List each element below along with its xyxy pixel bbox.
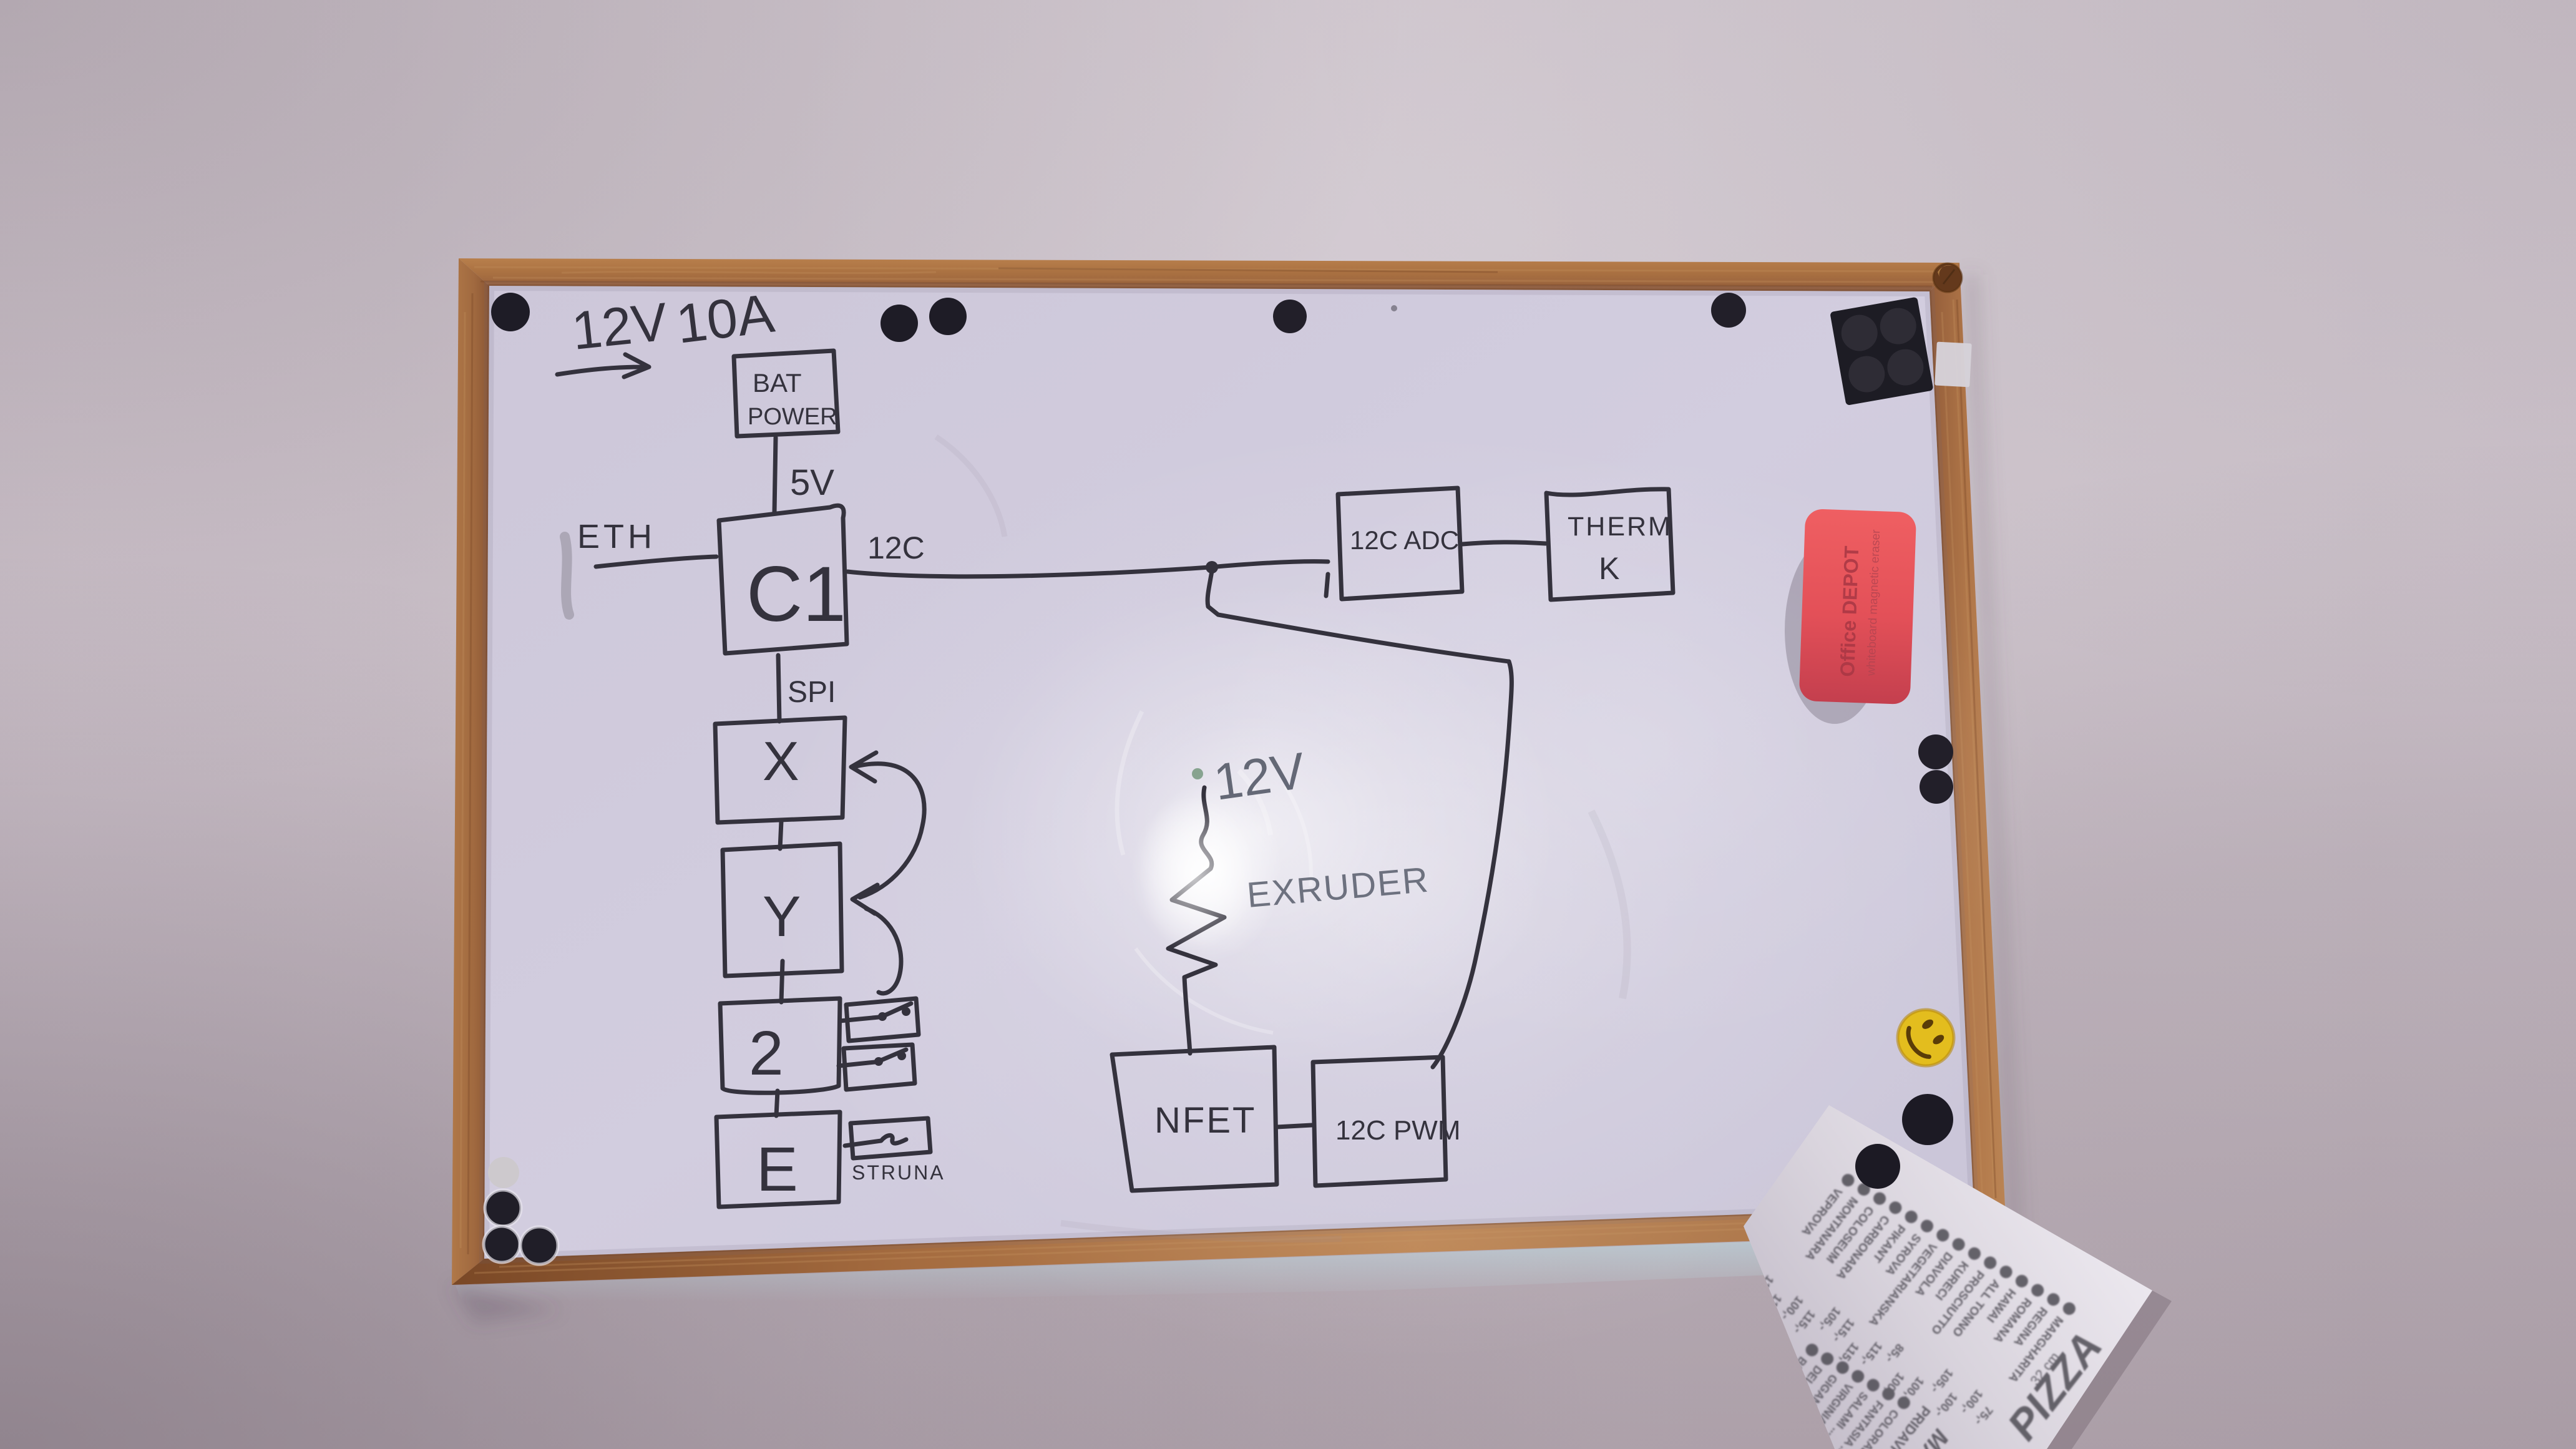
svg-text:THERM: THERM <box>1568 512 1672 542</box>
svg-text:ETH: ETH <box>577 518 656 555</box>
svg-text:10A: 10A <box>673 281 778 354</box>
svg-text:E: E <box>756 1134 798 1204</box>
svg-text:POWER: POWER <box>748 404 837 430</box>
svg-text:NFET: NFET <box>1154 1100 1256 1141</box>
svg-text:C1: C1 <box>746 551 846 638</box>
svg-text:2: 2 <box>749 1018 784 1088</box>
svg-text:Office DEPOT: Office DEPOT <box>1836 545 1863 677</box>
svg-text:STRUNA: STRUNA <box>852 1161 945 1184</box>
svg-text:5V: 5V <box>790 462 834 503</box>
svg-text:K: K <box>1599 551 1619 586</box>
svg-text:12V: 12V <box>569 291 670 361</box>
svg-text:SPI: SPI <box>788 676 836 709</box>
svg-text:12C ADC: 12C ADC <box>1350 525 1459 555</box>
svg-text:12C PWM: 12C PWM <box>1335 1115 1460 1146</box>
svg-text:Y: Y <box>763 885 801 949</box>
svg-text:X: X <box>763 730 799 792</box>
svg-text:BAT: BAT <box>753 368 802 398</box>
svg-text:12C: 12C <box>867 530 925 565</box>
